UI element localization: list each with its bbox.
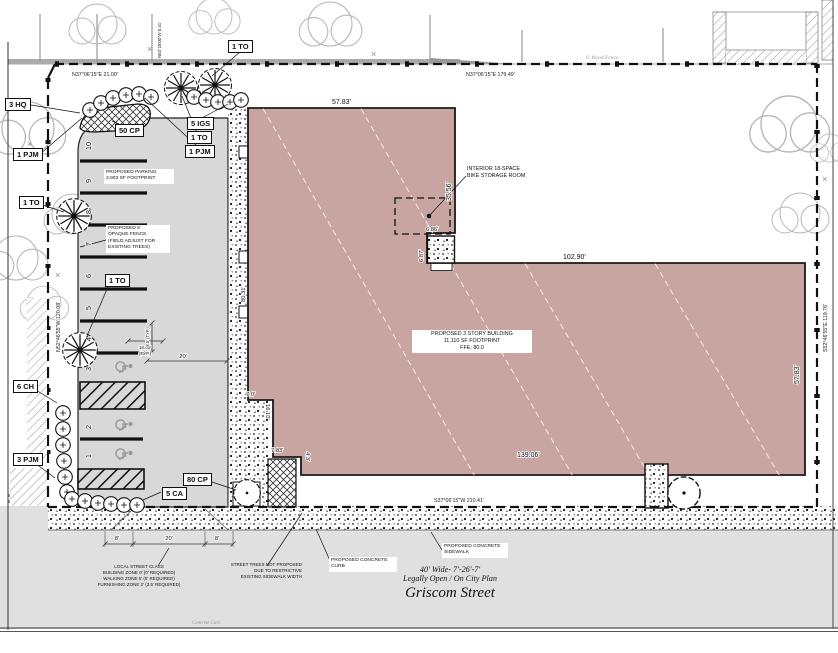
plant-label: 3 HQ	[5, 98, 31, 111]
svg-text:5: 5	[84, 306, 93, 310]
plant-label: 3 PJM	[13, 453, 43, 466]
removed-tree-mark: ×	[822, 174, 827, 184]
parking-note: PROPOSED PARKING 3,903 SF FOOTPRINT	[104, 169, 174, 184]
svg-text:57.83': 57.83'	[332, 99, 351, 106]
entry-walkway	[268, 459, 296, 507]
sidewalk	[48, 506, 838, 530]
svg-text:7.0': 7.0'	[246, 392, 255, 398]
street-status-note: Legally Open / On City Plan	[350, 574, 550, 583]
svg-text:2: 2	[84, 425, 93, 429]
drawing-svg: N37°06'15"E 21.00' N37°06'15"E 179.49' S…	[0, 0, 838, 653]
site-plan-canvas: N37°06'15"E 21.00' N37°06'15"E 179.49' S…	[0, 0, 838, 653]
svg-text:102.90': 102.90'	[563, 254, 586, 261]
svg-text:7: 7	[84, 242, 93, 246]
svg-text:6: 6	[84, 274, 93, 278]
svg-text:35.56': 35.56'	[446, 182, 453, 201]
building-note: PROPOSED 3 STORY BUILDING 11,110 SF FOOT…	[412, 330, 532, 353]
street-class-note: LOCAL STREET CLASS BUILDING ZONE 0' (0' …	[96, 564, 182, 587]
hatched-no-parking-zone	[78, 469, 144, 489]
svg-text:20': 20'	[179, 354, 187, 360]
plant-label: 6 CH	[13, 380, 38, 393]
bearing-top-right: N37°06'15"E 179.49'	[466, 72, 515, 78]
svg-text:8': 8'	[215, 536, 219, 542]
svg-text:16.10': 16.10'	[264, 404, 270, 420]
removed-tree-mark: ×	[147, 44, 152, 54]
svg-text:80.31': 80.31'	[241, 286, 247, 302]
svg-text:10: 10	[84, 142, 93, 150]
svg-text:9: 9	[84, 179, 93, 183]
plant-label: 1 PJM	[13, 148, 43, 161]
wood-fence-note: 6' Wood Fence	[586, 55, 619, 61]
svg-text:4.3': 4.3'	[304, 452, 310, 461]
svg-text:7.83': 7.83'	[271, 448, 283, 454]
street-trees-note: STREET TREES NOT PROPOSED DUE TO RESTRIC…	[228, 562, 302, 580]
proposed-building	[248, 100, 805, 485]
plant-label: 1 TO	[105, 274, 130, 287]
removed-tree-mark: ×	[371, 49, 376, 59]
svg-text:3: 3	[84, 367, 93, 371]
plant-label: 80 CP	[183, 473, 212, 486]
plant-label: 50 CP	[115, 124, 144, 137]
existing-curb-note: Concrete Curb	[192, 621, 221, 626]
bushes	[233, 477, 700, 509]
svg-text:139.06': 139.06'	[517, 452, 540, 459]
fence-note: PROPOSED 5' OPAQUE FENCE (FIELD ADJUST F…	[106, 225, 170, 253]
street-name: Griscom Street	[350, 585, 550, 602]
bike-room-note: INTERIOR 18-SPACE BIKE STORAGE ROOM	[467, 166, 567, 180]
plant-label: 1 TO	[187, 131, 212, 144]
street-width-note: 40' Wide- 7'-26'-7'	[350, 565, 550, 574]
street-title-block: 40' Wide- 7'-26'-7' Legally Open / On Ci…	[350, 565, 550, 602]
bearing-left: N52°46'55"W 120.08'	[56, 302, 62, 352]
plant-label: 5 IGS	[187, 117, 214, 130]
plant-label: 5 CA	[162, 487, 187, 500]
svg-text:8.5' (TYP.): 8.5' (TYP.)	[145, 327, 150, 347]
svg-text:57.83': 57.83'	[794, 365, 801, 384]
plant-label: 1 PJM	[185, 145, 215, 158]
svg-text:6.87': 6.87'	[419, 250, 425, 262]
bearing-right: S52°46'55"E 119.76'	[823, 304, 829, 352]
hatched-no-parking-zone	[80, 382, 145, 409]
sidewalk-note: PROPOSED CONCRETE SIDEWALK	[442, 543, 508, 558]
plant-label: 1 TO	[228, 40, 253, 53]
bearing-top-corner: N63°18'00"W 0.41'	[157, 22, 162, 58]
svg-text:(TYP.): (TYP.)	[139, 351, 152, 356]
bearing-bottom: S37°06'15"W 210.41'	[434, 498, 484, 504]
svg-text:4: 4	[84, 337, 93, 341]
plant-label: 1 TO	[19, 196, 44, 209]
svg-text:8: 8	[84, 210, 93, 214]
svg-text:20': 20'	[165, 536, 173, 542]
bearing-top-left: N37°06'15"E 21.00'	[72, 72, 118, 78]
svg-text:1: 1	[84, 454, 93, 458]
removed-tree-mark: ×	[55, 270, 60, 280]
svg-text:8': 8'	[115, 536, 119, 542]
svg-text:6.86': 6.86'	[426, 227, 438, 233]
